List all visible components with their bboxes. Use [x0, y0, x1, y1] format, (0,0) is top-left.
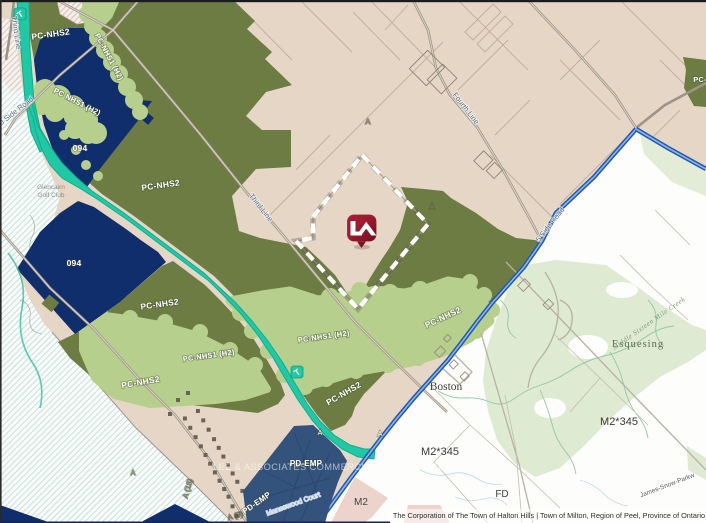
svg-text:094: 094 [67, 258, 82, 268]
svg-text:Golf Club: Golf Club [37, 192, 64, 199]
svg-text:A: A [378, 431, 383, 438]
svg-text:M2*345: M2*345 [600, 416, 638, 428]
svg-text:LEE & ASSOCIATES COMMERCIAL RE: LEE & ASSOCIATES COMMERCIAL REAL ESTATE … [213, 462, 498, 472]
svg-text:The Corporation of The Town of: The Corporation of The Town of Halton Hi… [393, 511, 706, 520]
svg-text:FD: FD [495, 489, 508, 500]
svg-text:A: A [365, 117, 370, 126]
svg-text:PC-: PC- [693, 75, 706, 84]
svg-text:Boston: Boston [430, 381, 463, 393]
svg-text:A: A [131, 470, 136, 477]
svg-text:A: A [430, 204, 435, 211]
svg-text:A: A [318, 430, 323, 437]
svg-text:Glencairn: Glencairn [37, 184, 65, 191]
svg-text:094: 094 [73, 143, 88, 153]
svg-text:M2*345: M2*345 [421, 446, 459, 458]
svg-text:M2: M2 [354, 497, 368, 508]
